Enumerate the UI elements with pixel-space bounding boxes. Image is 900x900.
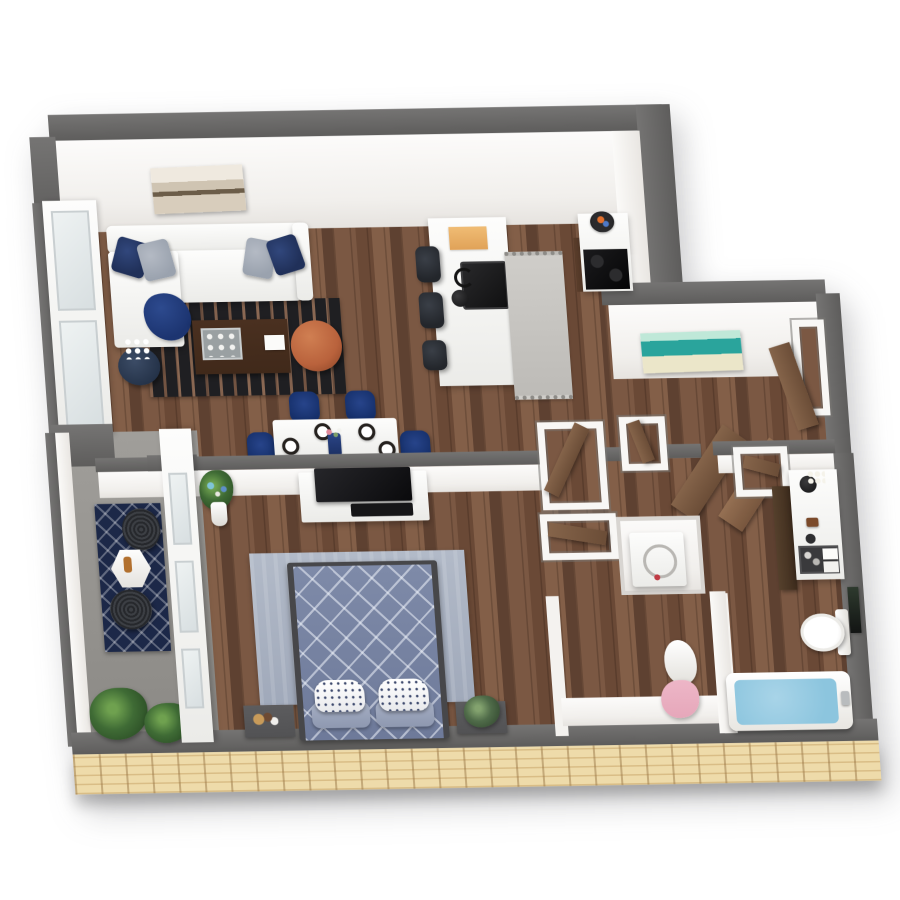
cutting-board: [448, 226, 488, 250]
place-setting-3: [358, 423, 376, 440]
washer-indicator: [654, 574, 660, 580]
walkin-closet-back-wall: [561, 695, 731, 726]
tv-soundbar: [351, 503, 414, 517]
bar-stool-1: [415, 246, 442, 282]
dining-chair-top-2: [344, 390, 376, 421]
left-window-pane-lower: [59, 320, 105, 427]
centerpiece-flowers: [321, 425, 348, 439]
coffee-table-book: [264, 335, 285, 350]
vanity-faucet: [806, 518, 819, 527]
tray-glasses: [204, 331, 240, 358]
kitchen-runner-rug: [504, 251, 573, 400]
island-kettle: [451, 290, 469, 307]
bar-stool-2: [418, 292, 445, 328]
cooktop: [583, 249, 630, 290]
bedroom-flower-vase: [210, 502, 228, 526]
vanity-flowers: [807, 470, 826, 483]
floor-plan-stage: [0, 0, 900, 900]
tub-faucet: [841, 691, 850, 705]
apartment-floor-plan: [0, 0, 900, 900]
bed-pillow-right: [377, 678, 429, 711]
bed-pillow-left: [313, 680, 365, 713]
hex-table-bottle: [123, 557, 132, 573]
side-table-flowers: [123, 337, 151, 359]
sink-faucet: [453, 268, 474, 288]
vanity-soap-dish: [805, 534, 816, 544]
vanity-towels-2: [823, 561, 839, 572]
left-window-pane-upper: [51, 210, 96, 311]
entry-beach-art: [640, 330, 743, 373]
top-wall-inner-face: [54, 131, 647, 233]
nightstand-left-decor: [252, 709, 279, 729]
dining-chair-top-1: [288, 391, 320, 422]
living-wall-art: [150, 164, 246, 214]
bathtub-water: [734, 678, 839, 725]
tv-screen: [314, 467, 412, 503]
bedroom-vase-flowers: [200, 476, 234, 501]
place-setting-1: [282, 438, 300, 455]
vanity-towels: [822, 548, 838, 559]
bar-stool-3: [422, 340, 448, 370]
tray-toiletries: [801, 549, 823, 571]
